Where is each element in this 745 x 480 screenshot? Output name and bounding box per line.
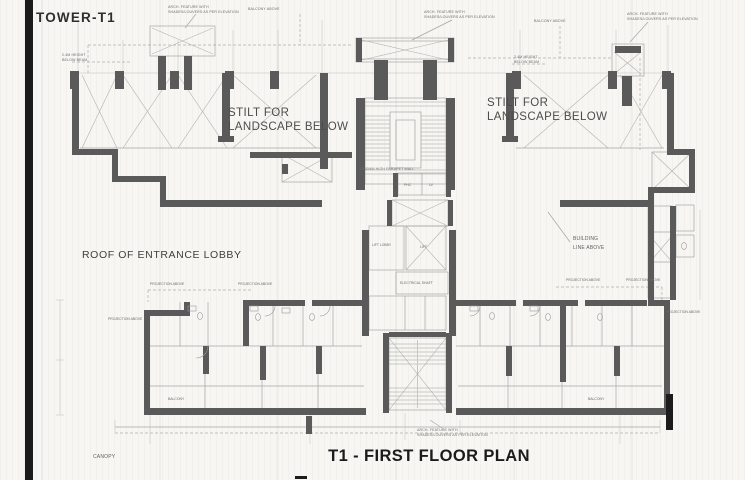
parapet-note: 1200MM HIGH PARAPET WALL (360, 167, 414, 171)
balcony-label-right: BALCONY (588, 397, 605, 401)
arch-feature-note-top-left-line2: SHADES/LOUVERS AS PER ELEVATION (168, 10, 239, 14)
floor-plan-canvas: TOWER-T1 ARCH. FEATURE WITH SHADES/LOUVE… (0, 0, 745, 480)
balcony-above-right-label: BALCONY ABOVE (534, 19, 566, 23)
lift-lobby-label: LIFT LOBBY (372, 243, 392, 247)
arch-feature-note-bottom-line1: ARCH. FEATURE WITH (417, 428, 458, 432)
scan-edge-bar (25, 0, 33, 480)
projection-above-label-3: PROJECTION ABOVE (108, 317, 143, 321)
balcony-above-left-label: BALCONY ABOVE (248, 7, 280, 11)
lift-label: LIFT (420, 245, 427, 249)
floor-plan-drawing: TOWER-T1 ARCH. FEATURE WITH SHADES/LOUVE… (0, 0, 745, 480)
projection-above-label-4: PROJECTION ABOVE (566, 278, 601, 282)
building-line-label-line2: LINE ABOVE (573, 245, 605, 251)
lv-room-label: LV (429, 183, 434, 187)
stilt-right-label-line2: LANDSCAPE BELOW (487, 111, 607, 123)
plan-title: T1 - FIRST FLOOR PLAN (328, 447, 530, 465)
phc-room-label: PHC (404, 183, 412, 187)
stilt-left-label-line1: STILT FOR (228, 107, 289, 119)
beam-note-right-line1: 2.4M HEIGHT (514, 55, 538, 59)
arch-feature-note-top-right-line1: ARCH. FEATURE WITH (627, 12, 668, 16)
stair-treads-layer (365, 102, 446, 408)
beam-note-left-line2: BELOW BEAM (62, 58, 87, 62)
projection-above-label-1: PROJECTION ABOVE (150, 282, 185, 286)
arch-feature-note-bottom-line2: SHADES/LOUVERS AS PER ELEVATION (417, 433, 488, 437)
roof-entrance-lobby-label: ROOF OF ENTRANCE LOBBY (82, 249, 242, 261)
arch-feature-note-top-right-line2: SHADES/LOUVERS AS PER ELEVATION (627, 17, 698, 21)
arch-feature-note-top-center-line2: SHADES/LOUVERS AS PER ELEVATION (424, 15, 495, 19)
tower-title: TOWER-T1 (36, 10, 116, 25)
beam-note-right-line2: BELOW BEAM (514, 60, 539, 64)
balcony-label-left: BALCONY (168, 397, 185, 401)
building-line-label-line1: BUILDING (573, 236, 598, 242)
projection-above-label-2: PROJECTION ABOVE (238, 282, 273, 286)
stilt-left-label-line2: LANDSCAPE BELOW (228, 121, 348, 133)
electrical-shaft-label: ELECTRICAL SHAFT (400, 281, 433, 285)
arch-feature-note-top-left-line1: ARCH. FEATURE WITH (168, 5, 209, 9)
projection-above-label-5: PROJECTION ABOVE (626, 278, 661, 282)
projection-above-label-6: PROJECTION ABOVE (666, 310, 701, 314)
canopy-label: CANOPY (93, 454, 116, 460)
beam-note-left-line1: 2.4M HEIGHT (62, 53, 86, 57)
stilt-right-label-line1: STILT FOR (487, 97, 548, 109)
arch-feature-note-top-center-line1: ARCH. FEATURE WITH (424, 10, 465, 14)
